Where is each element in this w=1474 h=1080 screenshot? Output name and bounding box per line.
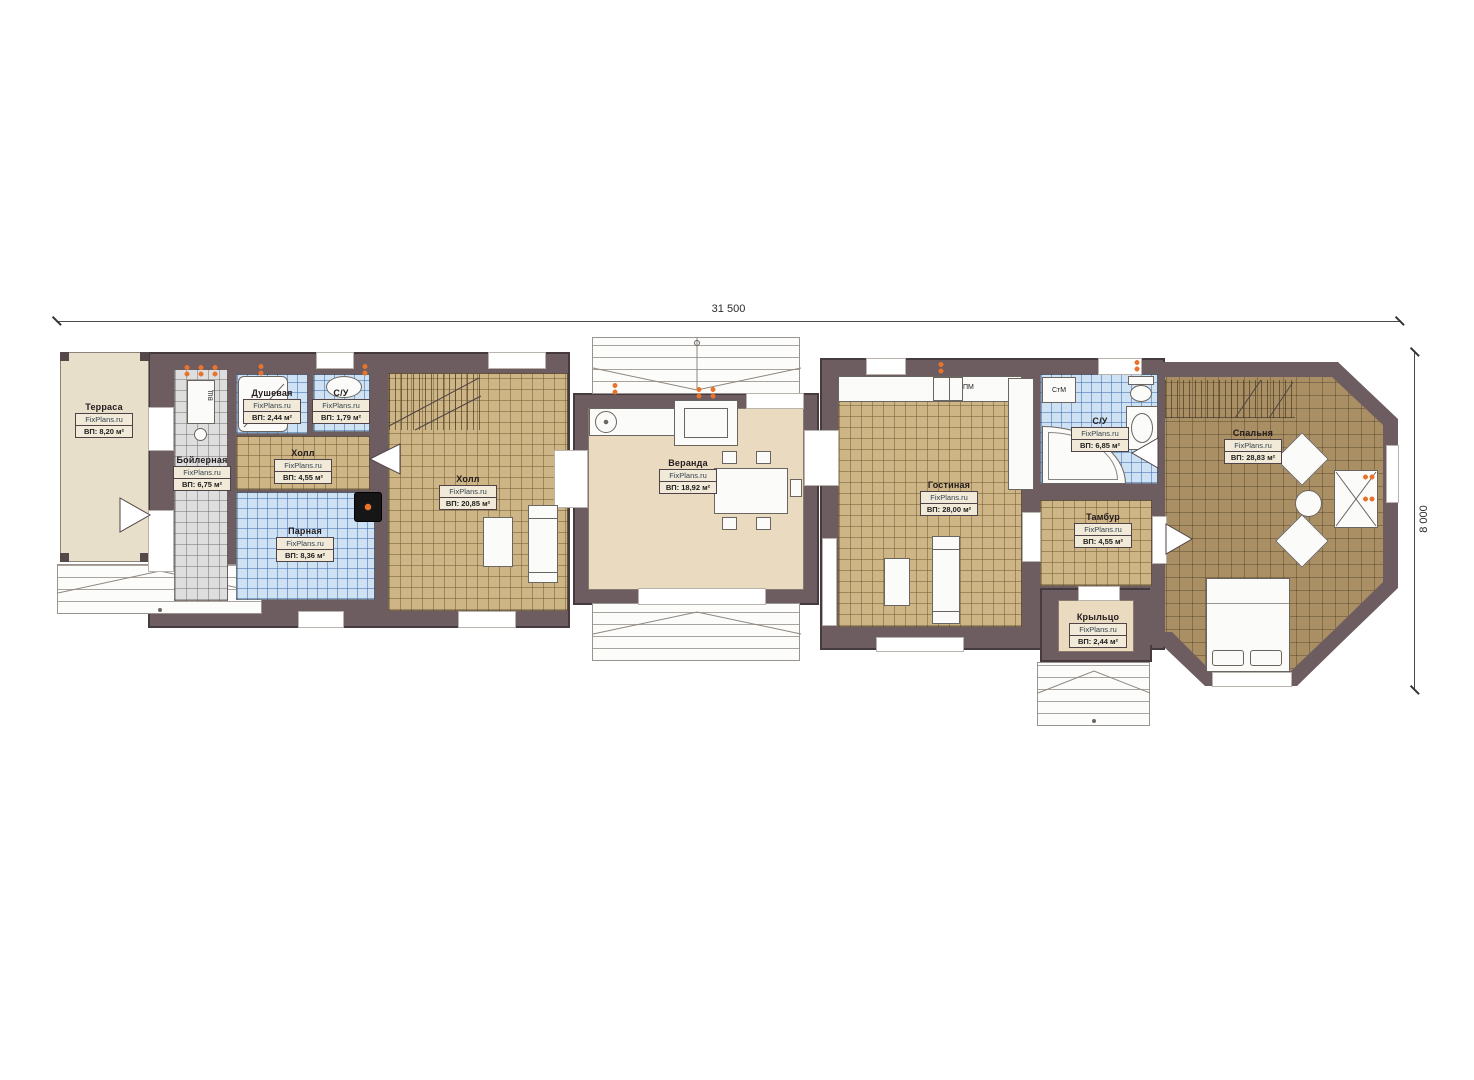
room-label-terrace: Терраса FixPlans.ruВП: 8,20 м² <box>64 402 144 439</box>
room-label-hall-sauna: Холл FixPlans.ruВП: 4,55 м² <box>268 448 338 485</box>
room-name: Гостиная <box>911 480 987 490</box>
room-area: ВП: 2,44 м² <box>1070 636 1126 647</box>
door-opening <box>1152 516 1167 564</box>
brand-watermark: FixPlans.ru <box>76 414 132 426</box>
tall-cabinet <box>1008 378 1034 490</box>
room-label-boiler: Бойлерная FixPlans.ruВП: 6,75 м² <box>163 455 241 492</box>
room-area: ВП: 4,55 м² <box>1075 536 1131 547</box>
door-leaf <box>120 498 150 532</box>
door-opening <box>804 430 839 486</box>
room-name: Бойлерная <box>163 455 241 465</box>
grill-burner <box>696 386 702 399</box>
room-label-porch: Крыльцо FixPlans.ruВП: 2,44 м² <box>1065 612 1131 649</box>
washing-machine: СтМ <box>1042 377 1076 403</box>
dimension-tick <box>1410 685 1420 695</box>
room-area: ВП: 28,00 м² <box>921 504 977 515</box>
chair <box>722 517 737 530</box>
pillow <box>1212 650 1244 666</box>
room-area: ВП: 28,83 м² <box>1225 452 1281 463</box>
room-name: Парная <box>268 526 342 536</box>
room-name: С/У <box>308 388 374 398</box>
sauna-stove <box>354 492 382 522</box>
chair <box>756 451 771 464</box>
brand-watermark: FixPlans.ru <box>1225 440 1281 452</box>
kitchen-counter <box>838 376 1022 402</box>
room-name: Веранда <box>650 458 726 468</box>
room-name: Спальня <box>1215 428 1291 438</box>
brand-watermark: FixPlans.ru <box>440 486 496 498</box>
brand-watermark: FixPlans.ru <box>1075 524 1131 536</box>
fireplace-ember <box>1362 496 1375 502</box>
wardrobe <box>1165 380 1295 418</box>
dimension-height-line <box>1414 352 1415 690</box>
room-area: ВП: 1,79 м² <box>313 412 369 423</box>
toilet-tank <box>1128 376 1154 385</box>
boiler-unit <box>187 380 215 424</box>
wall-lamp <box>258 363 264 376</box>
room-label-wc-sauna: С/У FixPlans.ruВП: 1,79 м² <box>308 388 374 425</box>
room-area: ВП: 8,36 м² <box>277 550 333 561</box>
door-opening <box>1022 512 1041 562</box>
room-area: ВП: 6,75 м² <box>174 479 230 490</box>
door-opening <box>746 393 804 409</box>
sofa-living <box>932 536 960 624</box>
room-area: ВП: 6,85 м² <box>1072 440 1128 451</box>
brand-watermark: FixPlans.ru <box>174 467 230 479</box>
chair <box>756 517 771 530</box>
room-name: Тамбур <box>1068 512 1138 522</box>
room-label-tambour: Тамбур FixPlans.ruВП: 4,55 м² <box>1068 512 1138 549</box>
window <box>822 538 837 626</box>
veranda-bottom-deck <box>592 603 800 661</box>
dimension-height-label: 8 000 <box>1418 491 1430 547</box>
burner-indicator <box>184 364 190 377</box>
room-label-bedroom: Спальня FixPlans.ruВП: 28,83 м² <box>1215 428 1291 465</box>
window <box>458 611 516 628</box>
dimension-width-label: 31 500 <box>57 303 1400 315</box>
room-name: Холл <box>268 448 338 458</box>
window <box>488 352 546 369</box>
room-name: Терраса <box>64 402 144 412</box>
window <box>1386 445 1399 503</box>
room-area: ВП: 2,44 м² <box>244 412 300 423</box>
brand-watermark: FixPlans.ru <box>313 400 369 412</box>
chair <box>790 479 802 497</box>
door-opening <box>1078 586 1120 601</box>
grill-burner <box>710 386 716 399</box>
wall-lamp <box>1134 359 1140 372</box>
porch-steps <box>1037 662 1150 726</box>
brand-watermark: FixPlans.ru <box>275 460 331 472</box>
room-name: Душевая <box>235 388 309 398</box>
brand-watermark: FixPlans.ru <box>1070 624 1126 636</box>
room-label-shower: Душевая FixPlans.ruВП: 2,44 м² <box>235 388 309 425</box>
room-area: ВП: 8,20 м² <box>76 426 132 437</box>
burner-indicator <box>198 364 204 377</box>
window <box>298 611 344 628</box>
room-label-living: Гостиная FixPlans.ruВП: 28,00 м² <box>911 480 987 517</box>
window <box>1212 672 1292 687</box>
wall-lamp <box>362 363 368 376</box>
floor-plan-canvas: 31 500 8 000 <box>0 0 1474 1080</box>
window <box>148 407 174 451</box>
door-opening <box>148 510 174 572</box>
brand-watermark: FixPlans.ru <box>244 400 300 412</box>
window <box>316 352 354 369</box>
brand-watermark: FixPlans.ru <box>921 492 977 504</box>
door-opening <box>554 450 588 508</box>
room-label-hall-main: Холл FixPlans.ruВП: 20,85 м² <box>431 474 505 511</box>
stairs <box>389 374 481 430</box>
room-area: ВП: 20,85 м² <box>440 498 496 509</box>
room-label-veranda: Веранда FixPlans.ruВП: 18,92 м² <box>650 458 726 495</box>
room-label-wc-main: С/У FixPlans.ruВП: 6,85 м² <box>1066 416 1134 453</box>
water-heater-label: ВЩ <box>208 390 215 400</box>
coffee-table <box>884 558 910 606</box>
room-label-steam: Парная FixPlans.ruВП: 8,36 м² <box>268 526 342 563</box>
sofa-hall <box>528 505 558 583</box>
room-name: Холл <box>431 474 505 484</box>
wall-lamp <box>612 382 618 395</box>
brand-watermark: FixPlans.ru <box>1072 428 1128 440</box>
terrace-post <box>60 553 69 562</box>
window <box>866 358 906 375</box>
bench <box>483 517 513 567</box>
pillow <box>1250 650 1282 666</box>
terrace-post <box>60 352 69 361</box>
door-leaf <box>370 444 400 474</box>
fireplace-ember <box>1362 474 1375 480</box>
wall-lamp <box>938 361 944 374</box>
room-area: ВП: 4,55 м² <box>275 472 331 483</box>
door-opening <box>638 588 766 605</box>
grill-inner <box>684 408 728 438</box>
room-area: ВП: 18,92 м² <box>660 482 716 493</box>
washing-machine-label: СтМ <box>1052 387 1066 394</box>
room-name: С/У <box>1066 416 1134 426</box>
brand-watermark: FixPlans.ru <box>660 470 716 482</box>
burner-indicator <box>212 364 218 377</box>
dimension-tick <box>1410 347 1420 357</box>
brand-watermark: FixPlans.ru <box>277 538 333 550</box>
kitchen-sink <box>933 377 963 401</box>
door-leaf <box>1166 524 1192 554</box>
dimension-width-line <box>57 321 1400 322</box>
terrace-post <box>140 352 149 361</box>
round-table <box>1295 490 1322 517</box>
door-leaf <box>1132 438 1158 468</box>
veranda-sink <box>595 411 617 433</box>
dishwasher-label: ПМ <box>963 384 974 391</box>
boiler-gauge <box>194 428 207 441</box>
window <box>876 637 964 652</box>
toilet-bowl <box>1130 385 1152 402</box>
room-name: Крыльцо <box>1065 612 1131 622</box>
